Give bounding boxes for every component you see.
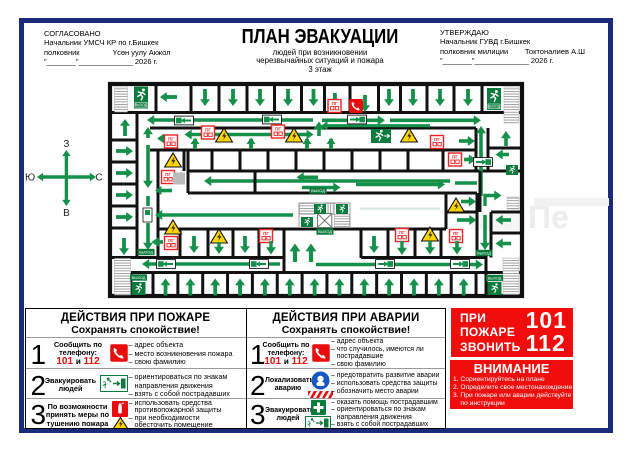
svg-text:Ю: Ю bbox=[25, 173, 35, 184]
svg-text:В: В bbox=[63, 208, 70, 219]
svg-text:З: З bbox=[63, 139, 69, 150]
svg-text:С: С bbox=[95, 173, 102, 184]
